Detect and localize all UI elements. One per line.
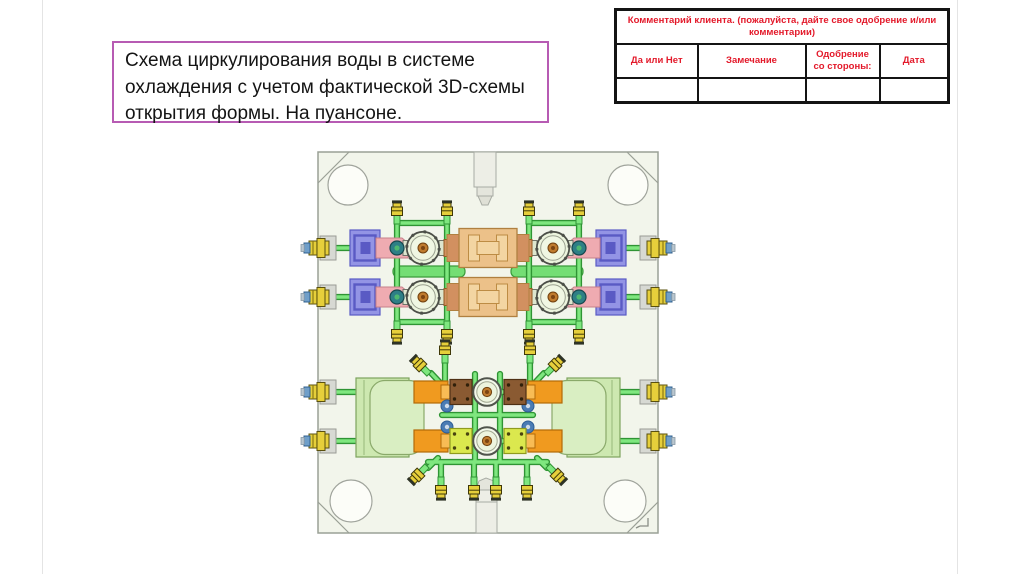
mold-top-view-diagram xyxy=(300,140,676,540)
insert-block-lime xyxy=(450,429,472,454)
mold-plate xyxy=(318,152,658,533)
slide-edge-right xyxy=(957,0,958,574)
cavity-insert xyxy=(447,278,529,317)
column-header-approval: Одобрение со стороны: xyxy=(806,44,880,78)
core-circle xyxy=(473,378,501,406)
core-circle xyxy=(473,427,501,455)
table-cell-empty xyxy=(616,78,698,103)
title-box: Схема циркулирования воды в системе охла… xyxy=(112,41,549,123)
slide-edge-left xyxy=(42,0,43,574)
insert-block-lime xyxy=(504,429,526,454)
title-line: охлаждения с учетом фактической 3D-схемы xyxy=(125,75,536,102)
cavity-insert xyxy=(447,229,529,268)
title-line: Схема циркулирования воды в системе xyxy=(125,48,536,75)
client-comment-table: Комментарий клиента. (пожалуйста, дайте … xyxy=(614,8,950,104)
slide-canvas: { "slide": { "title_box": { "lines": [ "… xyxy=(0,0,1024,574)
title-line: открытия формы. На пуансоне. xyxy=(125,101,536,128)
table-cell-empty xyxy=(806,78,880,103)
insert-block-brown xyxy=(450,380,472,405)
table-header: Комментарий клиента. (пожалуйста, дайте … xyxy=(616,10,949,44)
table-cell-empty xyxy=(880,78,949,103)
column-header-date: Дата xyxy=(880,44,949,78)
column-header-remark: Замечание xyxy=(698,44,806,78)
table-cell-empty xyxy=(698,78,806,103)
insert-block-brown xyxy=(504,380,526,405)
column-header-yes-no: Да или Нет xyxy=(616,44,698,78)
